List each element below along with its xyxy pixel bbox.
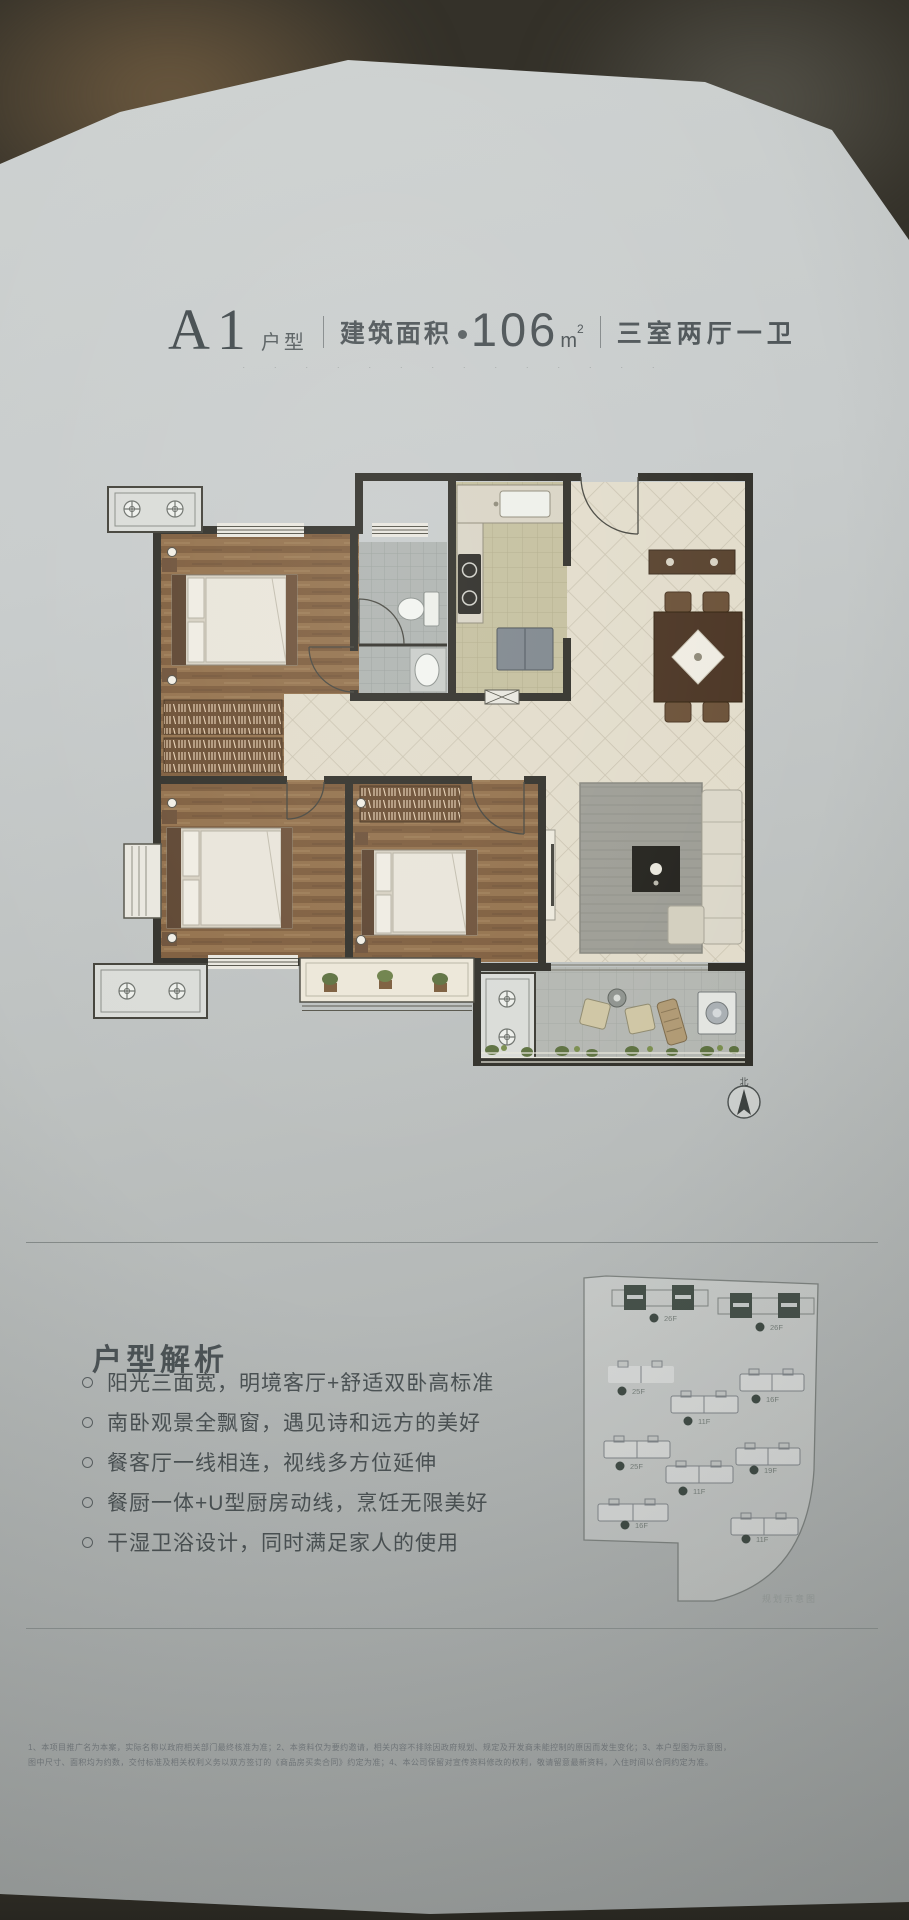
- fridge: [497, 628, 553, 670]
- wash-basin: [410, 648, 446, 692]
- compass: 北: [728, 1077, 760, 1118]
- list-item: 餐客厅一线相连，视线多方位延伸: [82, 1442, 494, 1482]
- list-item: 阳光三面宽，明境客厅+舒适双卧高标准: [82, 1362, 494, 1402]
- list-item: 干湿卫浴设计，同时满足家人的使用: [82, 1522, 494, 1562]
- svg-text:11F: 11F: [693, 1487, 706, 1496]
- compass-north-label: 北: [739, 1077, 748, 1087]
- bed-3: [355, 832, 477, 953]
- bullet-ring-icon: [82, 1537, 93, 1548]
- analysis-bullet: 干湿卫浴设计，同时满足家人的使用: [107, 1527, 459, 1557]
- area-label: 建筑面积: [340, 314, 452, 350]
- disclaimer-line: 图中尺寸、面积均为约数，交付标准及相关权利义务以双方签订的《商品房买卖合同》约定…: [28, 1757, 884, 1768]
- bed-1: [162, 558, 297, 682]
- dining-table: [654, 592, 742, 722]
- title-divider: [600, 316, 601, 348]
- analysis-list: 阳光三面宽，明境客厅+舒适双卧高标准 南卧观景全飘窗，遇见诗和远方的美好 餐客厅…: [82, 1362, 494, 1562]
- area-value: 106: [471, 302, 558, 357]
- list-item: 南卧观景全飘窗，遇见诗和远方的美好: [82, 1402, 494, 1442]
- kitchen-pass-window: [485, 690, 519, 704]
- wardrobe-bedroom-3: [360, 786, 460, 822]
- ac-platform-bottom: [94, 964, 207, 1018]
- analysis-bullet: 餐客厅一线相连，视线多方位延伸: [107, 1447, 437, 1477]
- bay-window-south: [300, 958, 474, 1011]
- site-plan-caption: 规划示意图: [762, 1592, 817, 1605]
- analysis-bullet: 阳光三面宽，明境客厅+舒适双卧高标准: [107, 1367, 494, 1397]
- bullet-ring-icon: [82, 1417, 93, 1428]
- unit-code: A1: [168, 296, 253, 363]
- svg-text:19F: 19F: [764, 1466, 777, 1475]
- sideboard: [649, 550, 735, 574]
- bed-2: [162, 810, 292, 946]
- floor-plan: 北: [72, 462, 772, 1127]
- divider-line-bottom: [26, 1628, 878, 1629]
- bullet-ring-icon: [82, 1497, 93, 1508]
- analysis-bullet: 南卧观景全飘窗，遇见诗和远方的美好: [107, 1407, 481, 1437]
- disclaimer-line: 1、本项目推广名为本案，实际名称以政府相关部门最终核准为准；2、本资料仅为要约邀…: [28, 1742, 884, 1753]
- window-bedroom2-bottom: [208, 955, 298, 969]
- bullet-ring-icon: [82, 1377, 93, 1388]
- svg-text:25F: 25F: [630, 1462, 643, 1471]
- area-unit: m2: [560, 322, 583, 353]
- unit-code-suffix: 户型: [261, 326, 307, 355]
- list-item: 餐厨一体+U型厨房动线，烹饪无限美好: [82, 1482, 494, 1522]
- brochure-page: A1 户型 建筑面积 106 m2 三室两厅一卫 · · · · · · · ·…: [0, 0, 909, 1920]
- svg-text:16F: 16F: [766, 1395, 779, 1404]
- svg-text:11F: 11F: [698, 1417, 711, 1426]
- bullet-ring-icon: [82, 1457, 93, 1468]
- divider-line-top: [26, 1242, 878, 1243]
- bullet-dot-icon: [458, 330, 467, 339]
- title-divider: [323, 316, 324, 348]
- svg-text:25F: 25F: [632, 1387, 645, 1396]
- room-layout-label: 三室两厅一卫: [617, 314, 797, 350]
- svg-text:16F: 16F: [635, 1521, 648, 1530]
- analysis-bullet: 餐厨一体+U型厨房动线，烹饪无限美好: [107, 1487, 488, 1517]
- window-bathroom-top: [372, 523, 428, 537]
- cooktop: [458, 554, 481, 614]
- svg-text:11F: 11F: [756, 1535, 769, 1544]
- photo-frame: A1 户型 建筑面积 106 m2 三室两厅一卫 · · · · · · · ·…: [0, 0, 909, 1920]
- window-bedroom1-top: [217, 523, 304, 537]
- svg-text:26F: 26F: [664, 1314, 677, 1323]
- bay-window-bedroom2-left: [124, 844, 161, 918]
- svg-text:26F: 26F: [770, 1323, 783, 1332]
- ac-platform-top: [108, 487, 202, 532]
- title-tagline: · · · · · · · · · · · · · ·: [240, 362, 670, 372]
- page-title: A1 户型 建筑面积 106 m2 三室两厅一卫: [168, 292, 797, 366]
- site-plan-map: 26F 26F 25F 16F: [578, 1262, 830, 1624]
